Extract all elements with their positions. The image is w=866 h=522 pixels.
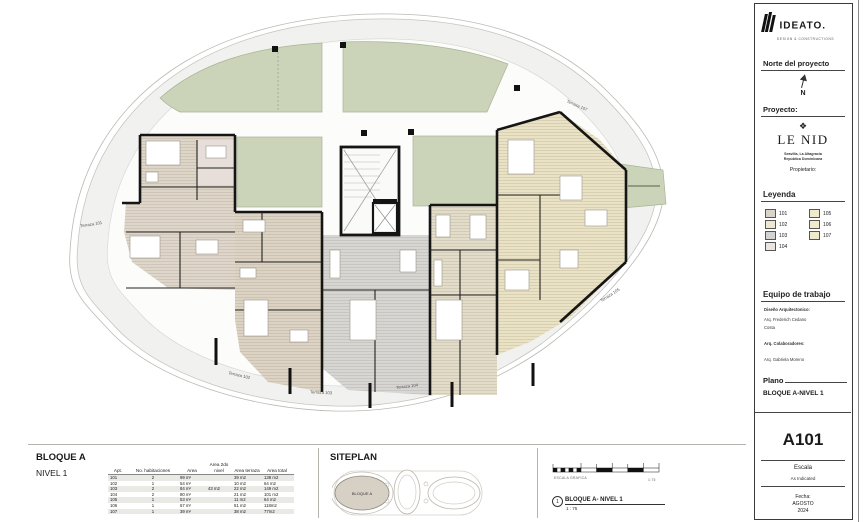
drawing-sheet: Terraza 101 Terraza 102 Terraza 103 Terr… [0, 0, 866, 522]
stair-core [341, 147, 399, 235]
fecha-label: Fecha: [755, 494, 851, 500]
team-name-1b: Costa [764, 325, 775, 330]
project-section-title: Proyecto: [763, 105, 798, 114]
bottom-panel-divider [28, 444, 746, 445]
col-area-terraza: Area terraza [232, 468, 262, 473]
legend-column-right: 105 106 107 [809, 208, 847, 241]
col-area-2do-nivel: Area 2do nivel [206, 462, 232, 473]
scalebar-value: 1:75 [648, 478, 656, 482]
team-name-1: Arq. Frederich Cedano [764, 317, 806, 322]
team-role-2: Arq. Colaboradores: [764, 341, 805, 346]
escala-rule-top [761, 460, 845, 461]
view-title-scale: 1 : 75 [566, 506, 577, 511]
project-name: LE NID [755, 132, 851, 148]
col-habitaciones: No. habitaciones [128, 468, 178, 473]
north-section-title: Norte del proyecto [763, 59, 829, 68]
legend-column-left: 101 102 103 104 [765, 208, 803, 252]
scalebar-label: ESCALA GRAFICA [554, 476, 587, 480]
legend-item-104: 104 [765, 241, 803, 252]
north-rule [761, 70, 845, 71]
legend-swatch-101 [765, 209, 776, 218]
col-apt: Apt. [108, 468, 128, 473]
team-section-title: Equipo de trabajo [763, 290, 831, 299]
title-block-sidebar: IDEATO. DESIGN & CONSTRUCTIONS Norte del… [754, 3, 853, 520]
legend-rule [761, 201, 845, 202]
panel-vertical-divider-1 [318, 448, 319, 518]
escala-label: Escala [755, 465, 851, 471]
siteplan-title: SITEPLAN [330, 452, 377, 463]
apartment-area-table: Apt. No. habitaciones Area Area 2do nive… [108, 449, 294, 514]
legend-title: Leyenda [763, 190, 795, 199]
legend-item-105: 105 [809, 208, 847, 219]
plano-value: BLOQUE A-NIVEL 1 [763, 390, 824, 397]
legend-swatch-102 [765, 220, 776, 229]
escala-value: As Indicated [755, 476, 851, 481]
sheet-section-rule [755, 412, 851, 413]
legend-swatch-105 [809, 209, 820, 218]
logo-tagline: DESIGN & CONSTRUCTIONS [777, 37, 843, 41]
sheet-number: A101 [755, 430, 851, 450]
legend-item-107: 107 [809, 230, 847, 241]
siteplan-bloque-a-label: BLOQUE A [352, 491, 373, 496]
panel-vertical-divider-2 [537, 448, 538, 518]
fecha-value-1: AGOSTO [755, 501, 851, 507]
view-number-circle: 1 [552, 496, 563, 507]
page-frame-right [858, 0, 859, 522]
owner-label: Propietario: [755, 167, 851, 173]
legend-swatch-107 [809, 231, 820, 240]
legend-swatch-106 [809, 220, 820, 229]
team-role-1: Diseño Arquitectonico: [764, 307, 810, 312]
view-number: 1 [556, 499, 559, 505]
table-header: Apt. No. habitaciones Area Area 2do nive… [108, 449, 294, 475]
legend-item-101: 101 [765, 208, 803, 219]
legend-item-103: 103 [765, 230, 803, 241]
graphic-scale-bar [551, 462, 663, 476]
col-area: Area [178, 468, 206, 473]
plano-underline [785, 374, 847, 383]
col-area-total: Area total [262, 468, 292, 473]
logo-mark-icon [763, 12, 775, 37]
logo-brand-text: IDEATO. [779, 21, 826, 32]
nivel-1-title: NIVEL 1 [36, 468, 67, 478]
project-logo-ornament-icon: ❖ [755, 121, 851, 132]
block-a-title: BLOQUE A [36, 452, 86, 463]
firm-logo: IDEATO. DESIGN & CONSTRUCTIONS [763, 12, 843, 41]
elevator [373, 199, 397, 233]
fecha-rule-top [761, 486, 845, 487]
plano-section: Plano [763, 374, 847, 385]
table-row: 107139 m²38 m277m2 [108, 509, 294, 515]
plano-label: Plano [763, 376, 783, 385]
team-rule [761, 301, 845, 302]
siteplan-drawing: BLOQUE A [332, 464, 532, 520]
fecha-value-2: 2024 [755, 508, 851, 514]
team-name-2: Arq. Gabriela Moreno [764, 357, 804, 362]
north-letter: N [793, 90, 813, 97]
project-subtitle-1: Seavilla, La Altagracia [755, 152, 851, 156]
floor-plan-drawing: Terraza 101 Terraza 102 Terraza 103 Terr… [0, 0, 745, 445]
north-arrow-icon [793, 74, 813, 90]
legend-swatch-103 [765, 231, 776, 240]
legend-swatch-104 [765, 242, 776, 251]
project-rule [761, 116, 845, 117]
legend-item-102: 102 [765, 219, 803, 230]
legend-item-106: 106 [809, 219, 847, 230]
table-body: 101299 m²39 m2138 m2 102154 m²10 m264 m2… [108, 475, 294, 514]
view-title-label: BLOQUE A- NIVEL 1 [565, 497, 665, 505]
project-subtitle-2: República Dominicana [755, 157, 851, 161]
